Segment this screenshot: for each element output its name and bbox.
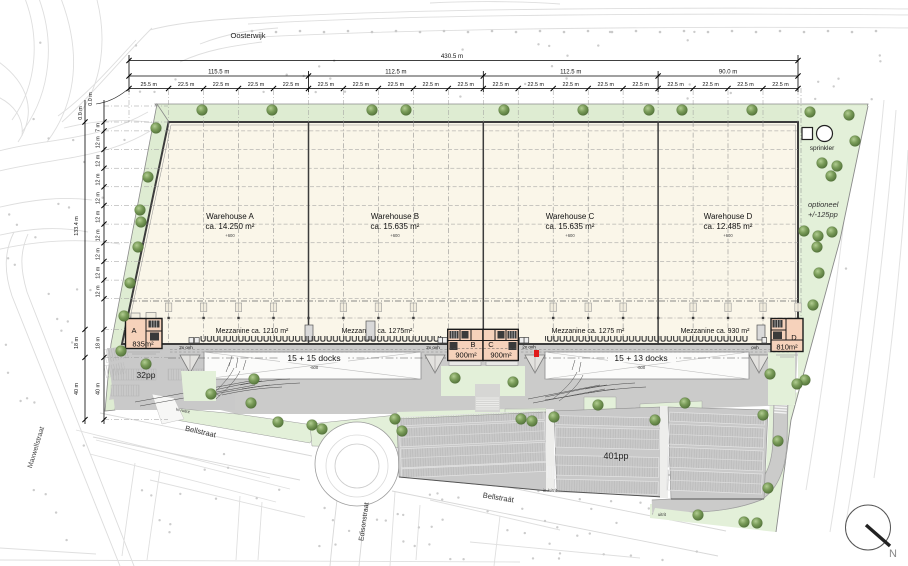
svg-text:0.0 m: 0.0 m [88, 92, 94, 106]
svg-text:ca. 15.635 m²: ca. 15.635 m² [546, 222, 595, 231]
svg-text:22.5 m: 22.5 m [388, 82, 405, 88]
svg-text:22.5 m: 22.5 m [702, 82, 719, 88]
svg-text:22.5 m: 22.5 m [493, 82, 510, 88]
svg-text:112.5 m: 112.5 m [385, 70, 406, 76]
svg-text:25.5 m: 25.5 m [141, 82, 158, 88]
svg-text:ca. 15.635 m²: ca. 15.635 m² [371, 222, 420, 231]
svg-text:12 m: 12 m [96, 154, 102, 166]
svg-text:D: D [791, 333, 797, 342]
svg-text:90.0 m: 90.0 m [719, 70, 737, 76]
svg-text:Mezzanine ca. 930 m²: Mezzanine ca. 930 m² [681, 328, 751, 335]
svg-text:22.5 m: 22.5 m [632, 82, 649, 88]
svg-text:22.5 m: 22.5 m [667, 82, 684, 88]
svg-text:22.5 m: 22.5 m [562, 82, 579, 88]
svg-text:32pp: 32pp [137, 370, 156, 380]
svg-text:15 + 15 docks: 15 + 15 docks [287, 353, 340, 363]
svg-text:900m²: 900m² [490, 351, 512, 360]
svg-text:12 m: 12 m [96, 210, 102, 222]
svg-text:+600: +600 [225, 233, 235, 238]
svg-text:uitrit: uitrit [658, 512, 667, 517]
svg-text:Mezzanine ca. 1275 m²: Mezzanine ca. 1275 m² [552, 328, 625, 335]
svg-text:ca. 12.485 m²: ca. 12.485 m² [704, 222, 753, 231]
svg-text:115.5 m: 115.5 m [208, 70, 229, 76]
svg-text:sprinkler: sprinkler [810, 145, 835, 152]
svg-text:Warehouse D: Warehouse D [704, 212, 753, 221]
svg-text:401pp: 401pp [603, 451, 628, 461]
svg-text:22.5 m: 22.5 m [248, 82, 265, 88]
svg-text:40 m: 40 m [96, 382, 102, 394]
svg-text:430.5 m: 430.5 m [441, 53, 463, 60]
svg-text:12 m: 12 m [96, 229, 102, 241]
svg-text:12 m: 12 m [96, 192, 102, 204]
svg-text:Oosterwijk: Oosterwijk [230, 31, 265, 40]
svg-text:133.4 m: 133.4 m [74, 216, 80, 236]
svg-text:12 m: 12 m [96, 173, 102, 185]
svg-text:ovh: ovh [751, 345, 759, 350]
svg-text:2x ovh: 2x ovh [522, 345, 536, 350]
svg-text:112.5 m: 112.5 m [560, 70, 581, 76]
svg-text:18 m: 18 m [96, 336, 102, 348]
svg-text:900m²: 900m² [455, 351, 477, 360]
svg-text:22.5 m: 22.5 m [527, 82, 544, 88]
svg-text:B: B [470, 340, 475, 349]
svg-text:+600: +600 [565, 233, 575, 238]
svg-text:22.5 m: 22.5 m [353, 82, 370, 88]
svg-text:N: N [889, 548, 897, 560]
svg-text:12 m: 12 m [96, 136, 102, 148]
svg-text:Warehouse A: Warehouse A [206, 212, 254, 221]
svg-text:22.5 m: 22.5 m [213, 82, 230, 88]
svg-text:22.5 m: 22.5 m [178, 82, 195, 88]
svg-text:optioneel: optioneel [808, 200, 839, 209]
svg-text:+600: +600 [390, 233, 400, 238]
svg-text:22.5 m: 22.5 m [318, 82, 335, 88]
svg-text:+600: +600 [723, 233, 733, 238]
svg-text:7 m: 7 m [96, 123, 102, 132]
svg-text:835m²: 835m² [132, 340, 154, 349]
svg-text:18 m: 18 m [74, 336, 80, 348]
svg-text:Mezzanine ca. 1275m²: Mezzanine ca. 1275m² [342, 328, 413, 335]
svg-text:A: A [131, 326, 136, 335]
svg-text:12 m: 12 m [96, 285, 102, 297]
svg-text:22.5 m: 22.5 m [458, 82, 475, 88]
svg-text:Mezzanine ca. 1210 m²: Mezzanine ca. 1210 m² [216, 328, 289, 335]
svg-text:22.5 m: 22.5 m [772, 82, 789, 88]
svg-text:C: C [488, 340, 494, 349]
svg-text:Warehouse B: Warehouse B [371, 212, 419, 221]
svg-text:40 m: 40 m [74, 382, 80, 394]
svg-text:-600: -600 [637, 365, 646, 370]
svg-text:22.5 m: 22.5 m [283, 82, 300, 88]
svg-text:2x ovh: 2x ovh [179, 345, 193, 350]
svg-text:+/-125pp: +/-125pp [808, 210, 838, 219]
svg-text:22.5 m: 22.5 m [737, 82, 754, 88]
svg-text:22.5 m: 22.5 m [423, 82, 440, 88]
svg-text:0.0 m: 0.0 m [78, 106, 84, 120]
svg-text:2x ovh: 2x ovh [426, 345, 440, 350]
svg-text:Warehouse C: Warehouse C [546, 212, 595, 221]
svg-text:-600: -600 [310, 365, 319, 370]
svg-text:810m²: 810m² [776, 343, 798, 352]
svg-text:ca. 14.250 m²: ca. 14.250 m² [206, 222, 255, 231]
svg-text:22.5 m: 22.5 m [597, 82, 614, 88]
svg-text:12 m: 12 m [96, 266, 102, 278]
svg-text:15 + 13 docks: 15 + 13 docks [614, 353, 667, 363]
svg-text:12 m: 12 m [96, 248, 102, 260]
svg-text:in-/uitrit: in-/uitrit [543, 488, 558, 493]
